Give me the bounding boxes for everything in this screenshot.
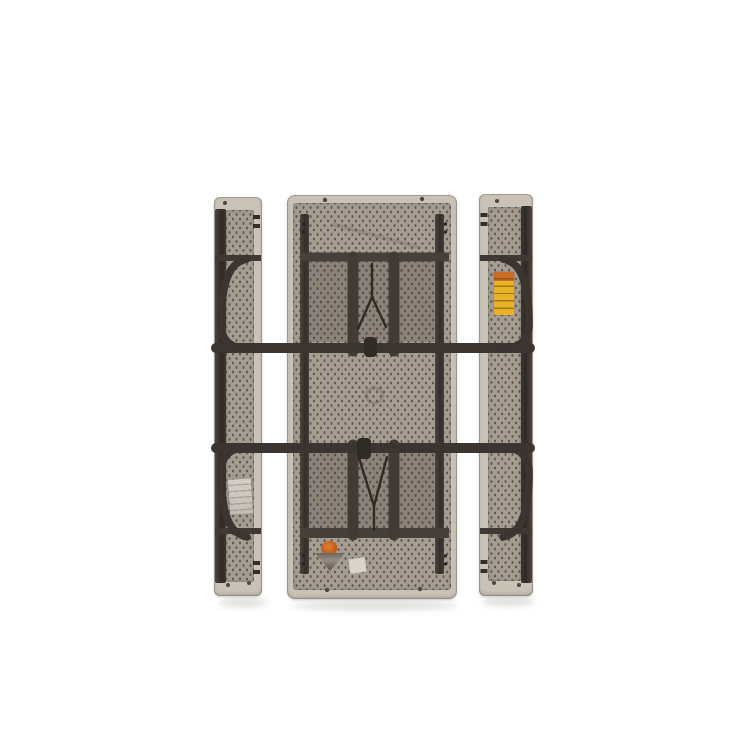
leg-lower-brace [359,457,387,530]
product-photo [0,0,750,750]
leg-lower-hook-left [221,447,250,537]
leg-upper-hook-left [221,259,250,349]
leg-upper-hook-right [500,259,529,349]
leg-frame-upper [216,257,530,357]
leg-lower-hook-right [500,447,529,537]
leg-lower-latch [357,438,371,459]
metal-frame-overlay [0,0,750,750]
leg-upper-brace [358,264,386,329]
leg-frame-lower [216,438,530,537]
leg-upper-latch [364,337,377,357]
bench-edge-clips [253,213,488,574]
